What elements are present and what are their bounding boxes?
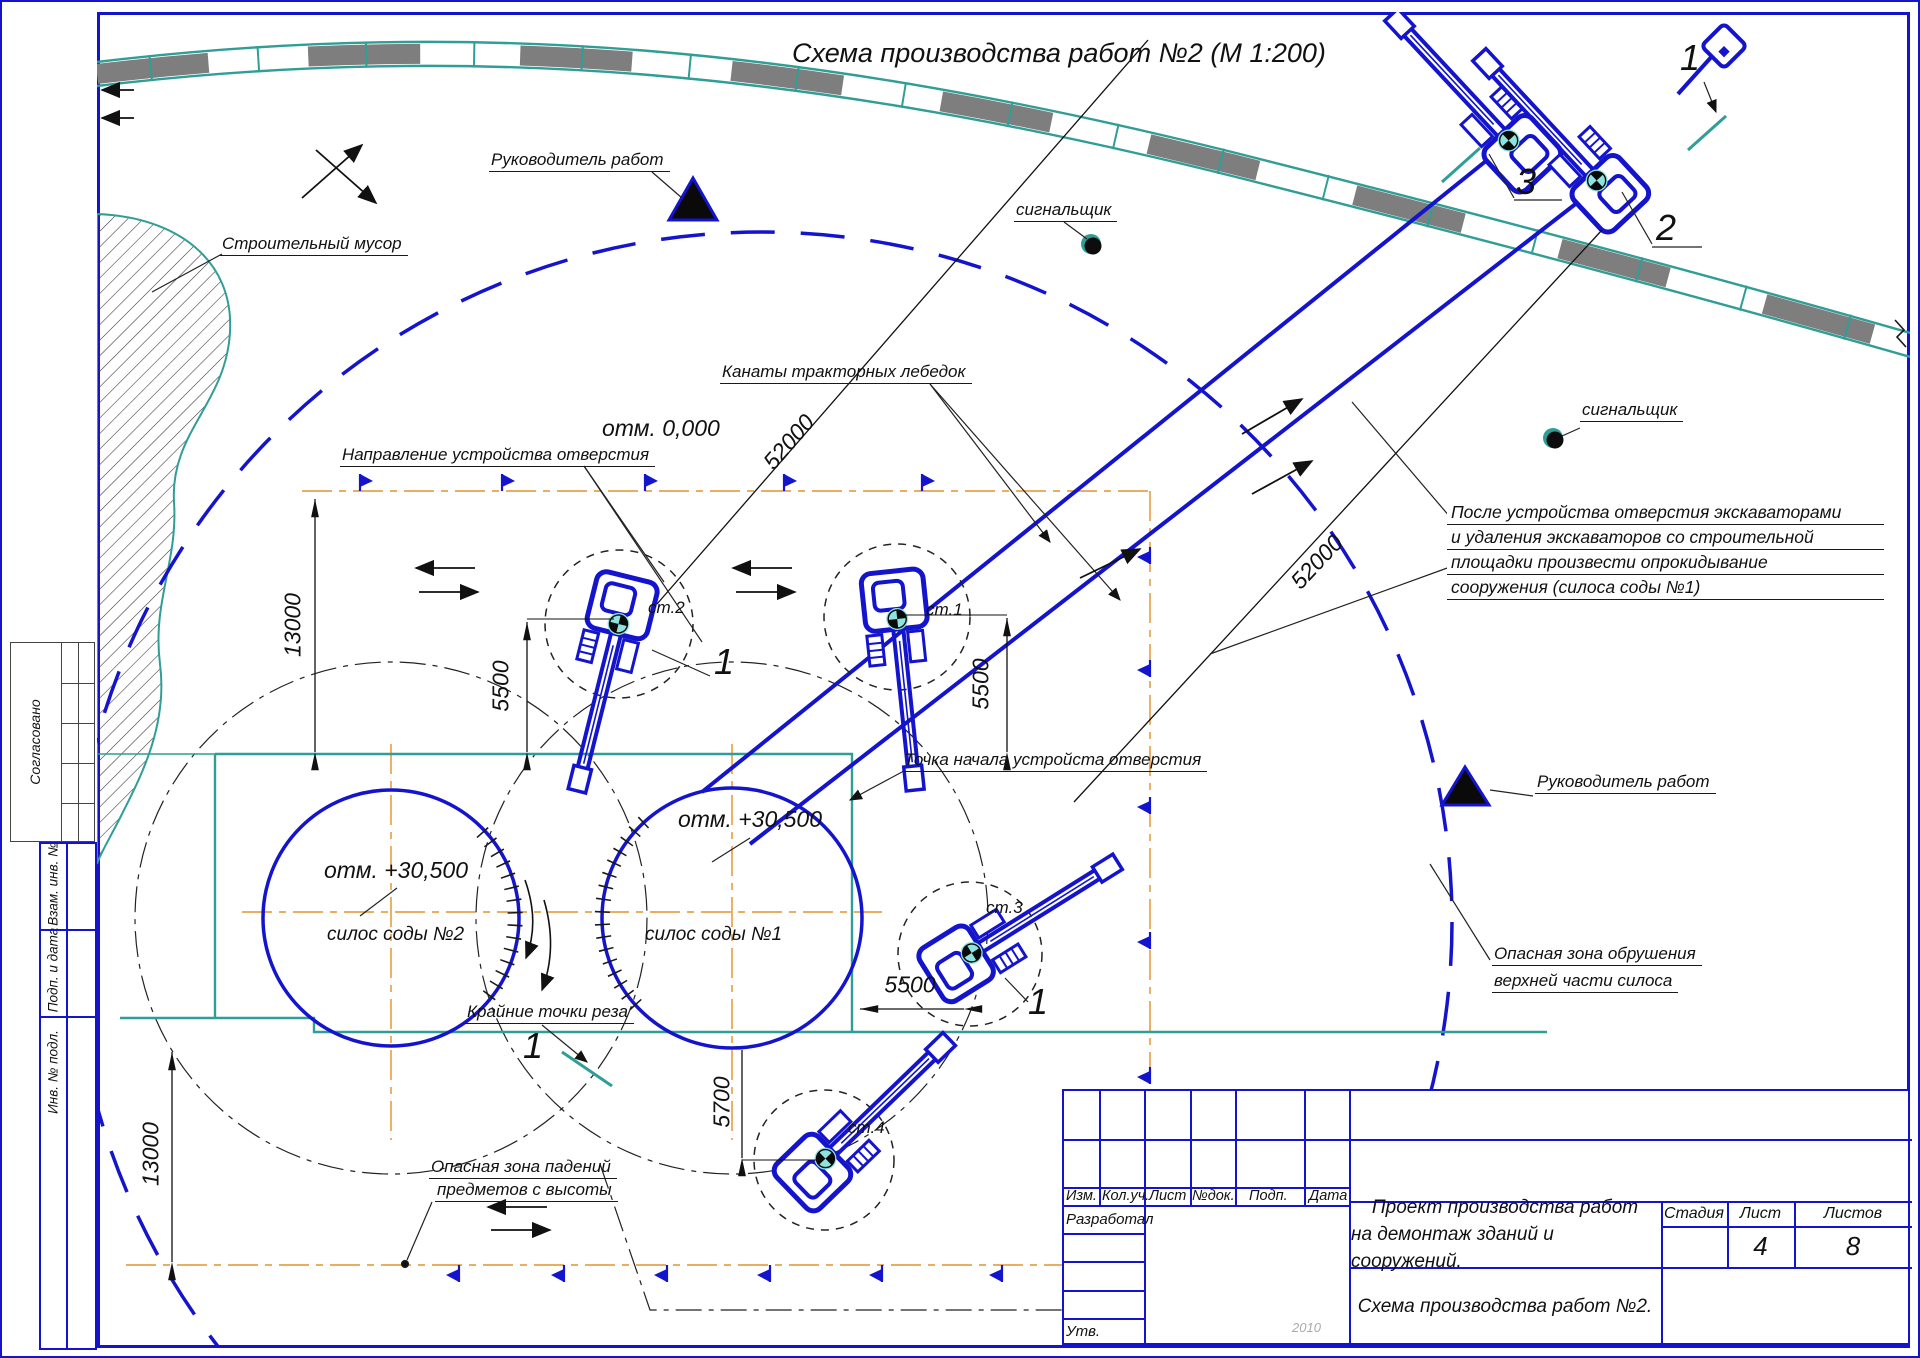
callout-1-top: 1 <box>1680 37 1700 79</box>
supervisor-triangle-left <box>669 178 717 220</box>
station-4-label: ст.4 <box>848 1118 885 1138</box>
tb-izm: Изм. <box>1066 1188 1097 1204</box>
elevation-zero: отм. 0,000 <box>602 415 720 442</box>
tb-date-faint: 2010 <box>1292 1320 1321 1335</box>
direction-arrows <box>102 90 1312 1230</box>
dim-5700: 5700 <box>709 1076 736 1127</box>
tb-utv: Утв. <box>1066 1323 1100 1340</box>
direction-label: Направление устройства отверстия <box>340 445 655 467</box>
supervisor-triangle-right <box>1442 767 1489 805</box>
dimension-lines <box>172 40 1602 1262</box>
tb-stadia-header: Стадия <box>1661 1201 1727 1226</box>
tb-podp: Подп. <box>1249 1188 1288 1204</box>
elevation-top-silo1: отм. +30,500 <box>678 806 822 833</box>
tb-list-number: 4 <box>1727 1226 1794 1267</box>
tb-list-header: Лист <box>1727 1201 1794 1226</box>
tb-sheet-name: Схема производства работ №2. <box>1351 1269 1659 1345</box>
debris-label: Строительный мусор <box>220 234 408 256</box>
callout-2: 2 <box>1656 207 1676 249</box>
station-2-label: ст.2 <box>648 598 685 618</box>
callout-3: 3 <box>1516 161 1536 203</box>
drawing-sheet: Схема производства работ №2 (М 1:200) Ру… <box>0 0 1920 1358</box>
title-block: Изм. Кол.уч. Лист №док. Подп. Дата Разра… <box>1062 1089 1910 1345</box>
callout-1-st2: 1 <box>714 641 734 683</box>
fall-zone-label-1: Опасная зона падений <box>429 1157 617 1179</box>
agreed-stamp-grid <box>10 642 95 842</box>
debris-area <box>97 214 230 864</box>
supervisor-label-right: Руководитель работ <box>1535 772 1716 794</box>
callout-1-cut: 1 <box>523 1025 543 1067</box>
drawing-title: Схема производства работ №2 (М 1:200) <box>792 38 1326 69</box>
tb-kolich: Кол.уч. <box>1102 1188 1149 1204</box>
supervisor-label-left: Руководитель работ <box>489 150 670 172</box>
silo-2-label: силос соды №2 <box>327 924 464 946</box>
fall-zone-label-2: предметов с высоты <box>435 1180 618 1202</box>
tb-project-line2: на демонтаж зданий и сооружений. <box>1351 1221 1659 1275</box>
station-1-label: ст.1 <box>926 600 963 620</box>
tb-listov-header: Листов <box>1794 1201 1912 1226</box>
dim-13000-top: 13000 <box>280 593 307 657</box>
building-outline <box>97 754 1547 1032</box>
margin-stamp-column <box>39 842 97 1350</box>
collapse-zone-label-1: Опасная зона обрушения <box>1492 944 1702 966</box>
tb-project-line1: Проект производства работ <box>1372 1194 1638 1221</box>
collapse-zone-label-2: верхней части силоса <box>1492 971 1678 993</box>
dim-5500-st1: 5500 <box>968 658 995 709</box>
tb-list: Лист <box>1149 1188 1186 1204</box>
excavator-st2 <box>546 570 659 798</box>
start-point-label: Точка начала устройста отверстия <box>902 750 1207 772</box>
dim-13000-bottom: 13000 <box>138 1122 165 1186</box>
cut-points-label: Крайние точки реза <box>465 1002 634 1024</box>
tb-data: Дата <box>1309 1188 1347 1204</box>
note-line: площадки произвести опрокидывание <box>1447 550 1884 575</box>
signalman-marker-right <box>1543 428 1564 449</box>
signalman-label-right: сигнальщик <box>1580 400 1683 422</box>
dim-5500-st3: 5500 <box>884 972 935 999</box>
tb-project-name: Проект производства работ на демонтаж зд… <box>1351 1203 1659 1265</box>
station-3-label: ст.3 <box>986 898 1023 918</box>
cables-label: Канаты тракторных лебедок <box>720 362 972 384</box>
cut-ticks-silo2 <box>482 832 515 1004</box>
elevation-top-silo2: отм. +30,500 <box>324 857 468 884</box>
callout-1-st3: 1 <box>1028 981 1048 1023</box>
silo-1-label: силос соды №1 <box>645 924 782 946</box>
signalman-label-left: сигнальщик <box>1014 200 1117 222</box>
note-line: и удаления экскаваторов со строительной <box>1447 525 1884 550</box>
dim-5500-st2: 5500 <box>488 660 515 711</box>
excavator-st3 <box>915 836 1134 1005</box>
tb-listov-number: 8 <box>1794 1226 1912 1267</box>
tb-razrabotal: Разработал <box>1066 1211 1153 1228</box>
note-line: сооружения (силоса соды №1) <box>1447 575 1884 600</box>
tb-ndok: №док. <box>1192 1188 1235 1204</box>
excavator-st4 <box>770 1018 971 1215</box>
note-block: После устройства отверстия экскаваторами… <box>1447 500 1884 600</box>
note-line: После устройства отверстия экскаваторами <box>1447 500 1884 525</box>
